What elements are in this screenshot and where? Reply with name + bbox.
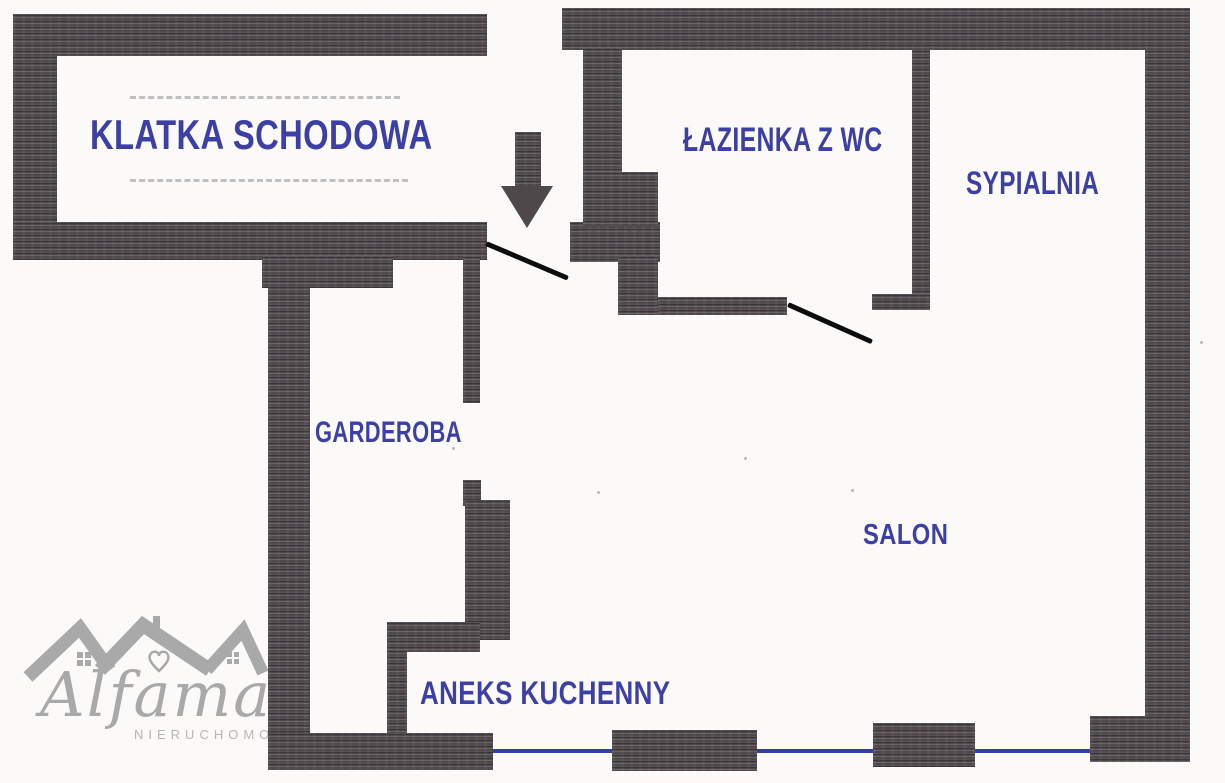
wall-bathroom-left-lower	[618, 256, 658, 315]
wall-kitchen-bar	[387, 622, 480, 652]
wall-window-sill-2	[873, 723, 975, 767]
wall-right-foot	[1090, 716, 1190, 762]
wall-bottom-left	[268, 733, 493, 770]
wall-bathroom-left-upper	[583, 48, 622, 176]
wall-kitchen-column	[465, 500, 510, 640]
wall-kitchen-column-lower	[387, 650, 407, 735]
wall-garderoba-right-upper	[463, 256, 480, 403]
wall-bathroom-bottom	[658, 297, 787, 315]
scan-speck	[597, 491, 600, 494]
scan-speck	[851, 489, 854, 492]
wall-window-sill-1	[612, 730, 757, 771]
scan-speck	[744, 457, 747, 460]
wall-staircase-bottom	[13, 222, 487, 260]
stair-treads-upper	[130, 96, 400, 99]
wall-top-right	[562, 8, 1190, 50]
room-label-klatka-schodowa: KLATKA SCHODOWA	[90, 114, 433, 156]
wall-bathroom-left-mid	[583, 172, 658, 226]
wall-bathroom-bedroom-divider	[912, 44, 930, 300]
entrance-arrow-shaft	[515, 132, 541, 188]
entrance-arrow-icon	[501, 186, 553, 228]
room-label-garderoba: GARDEROBA	[315, 418, 462, 448]
chimney	[153, 616, 160, 629]
stair-treads-lower	[130, 179, 408, 182]
room-label-sypialnia: SYPIALNIA	[966, 167, 1099, 199]
wall-divider-foot	[872, 294, 930, 310]
room-label-salon: SALON	[863, 521, 948, 550]
floor-plan: Alfama NIERUCHOMOŚCI KLATKA SCHODOWA ŁAZ…	[0, 0, 1225, 783]
wall-top-left	[13, 14, 487, 56]
door-swing-line-bathroom	[787, 302, 873, 344]
room-label-aneks-kuchenny: ANEKS KUCHENNY	[420, 677, 670, 709]
wall-right	[1145, 8, 1190, 720]
window-line	[483, 749, 1150, 753]
door-swing-line-entry	[485, 241, 569, 280]
scan-speck	[1200, 341, 1203, 344]
room-label-lazienka-z-wc: ŁAZIENKA Z WC	[683, 123, 883, 157]
wall-garderoba-left	[268, 256, 310, 770]
watermark-brand: Alfama	[40, 664, 272, 726]
